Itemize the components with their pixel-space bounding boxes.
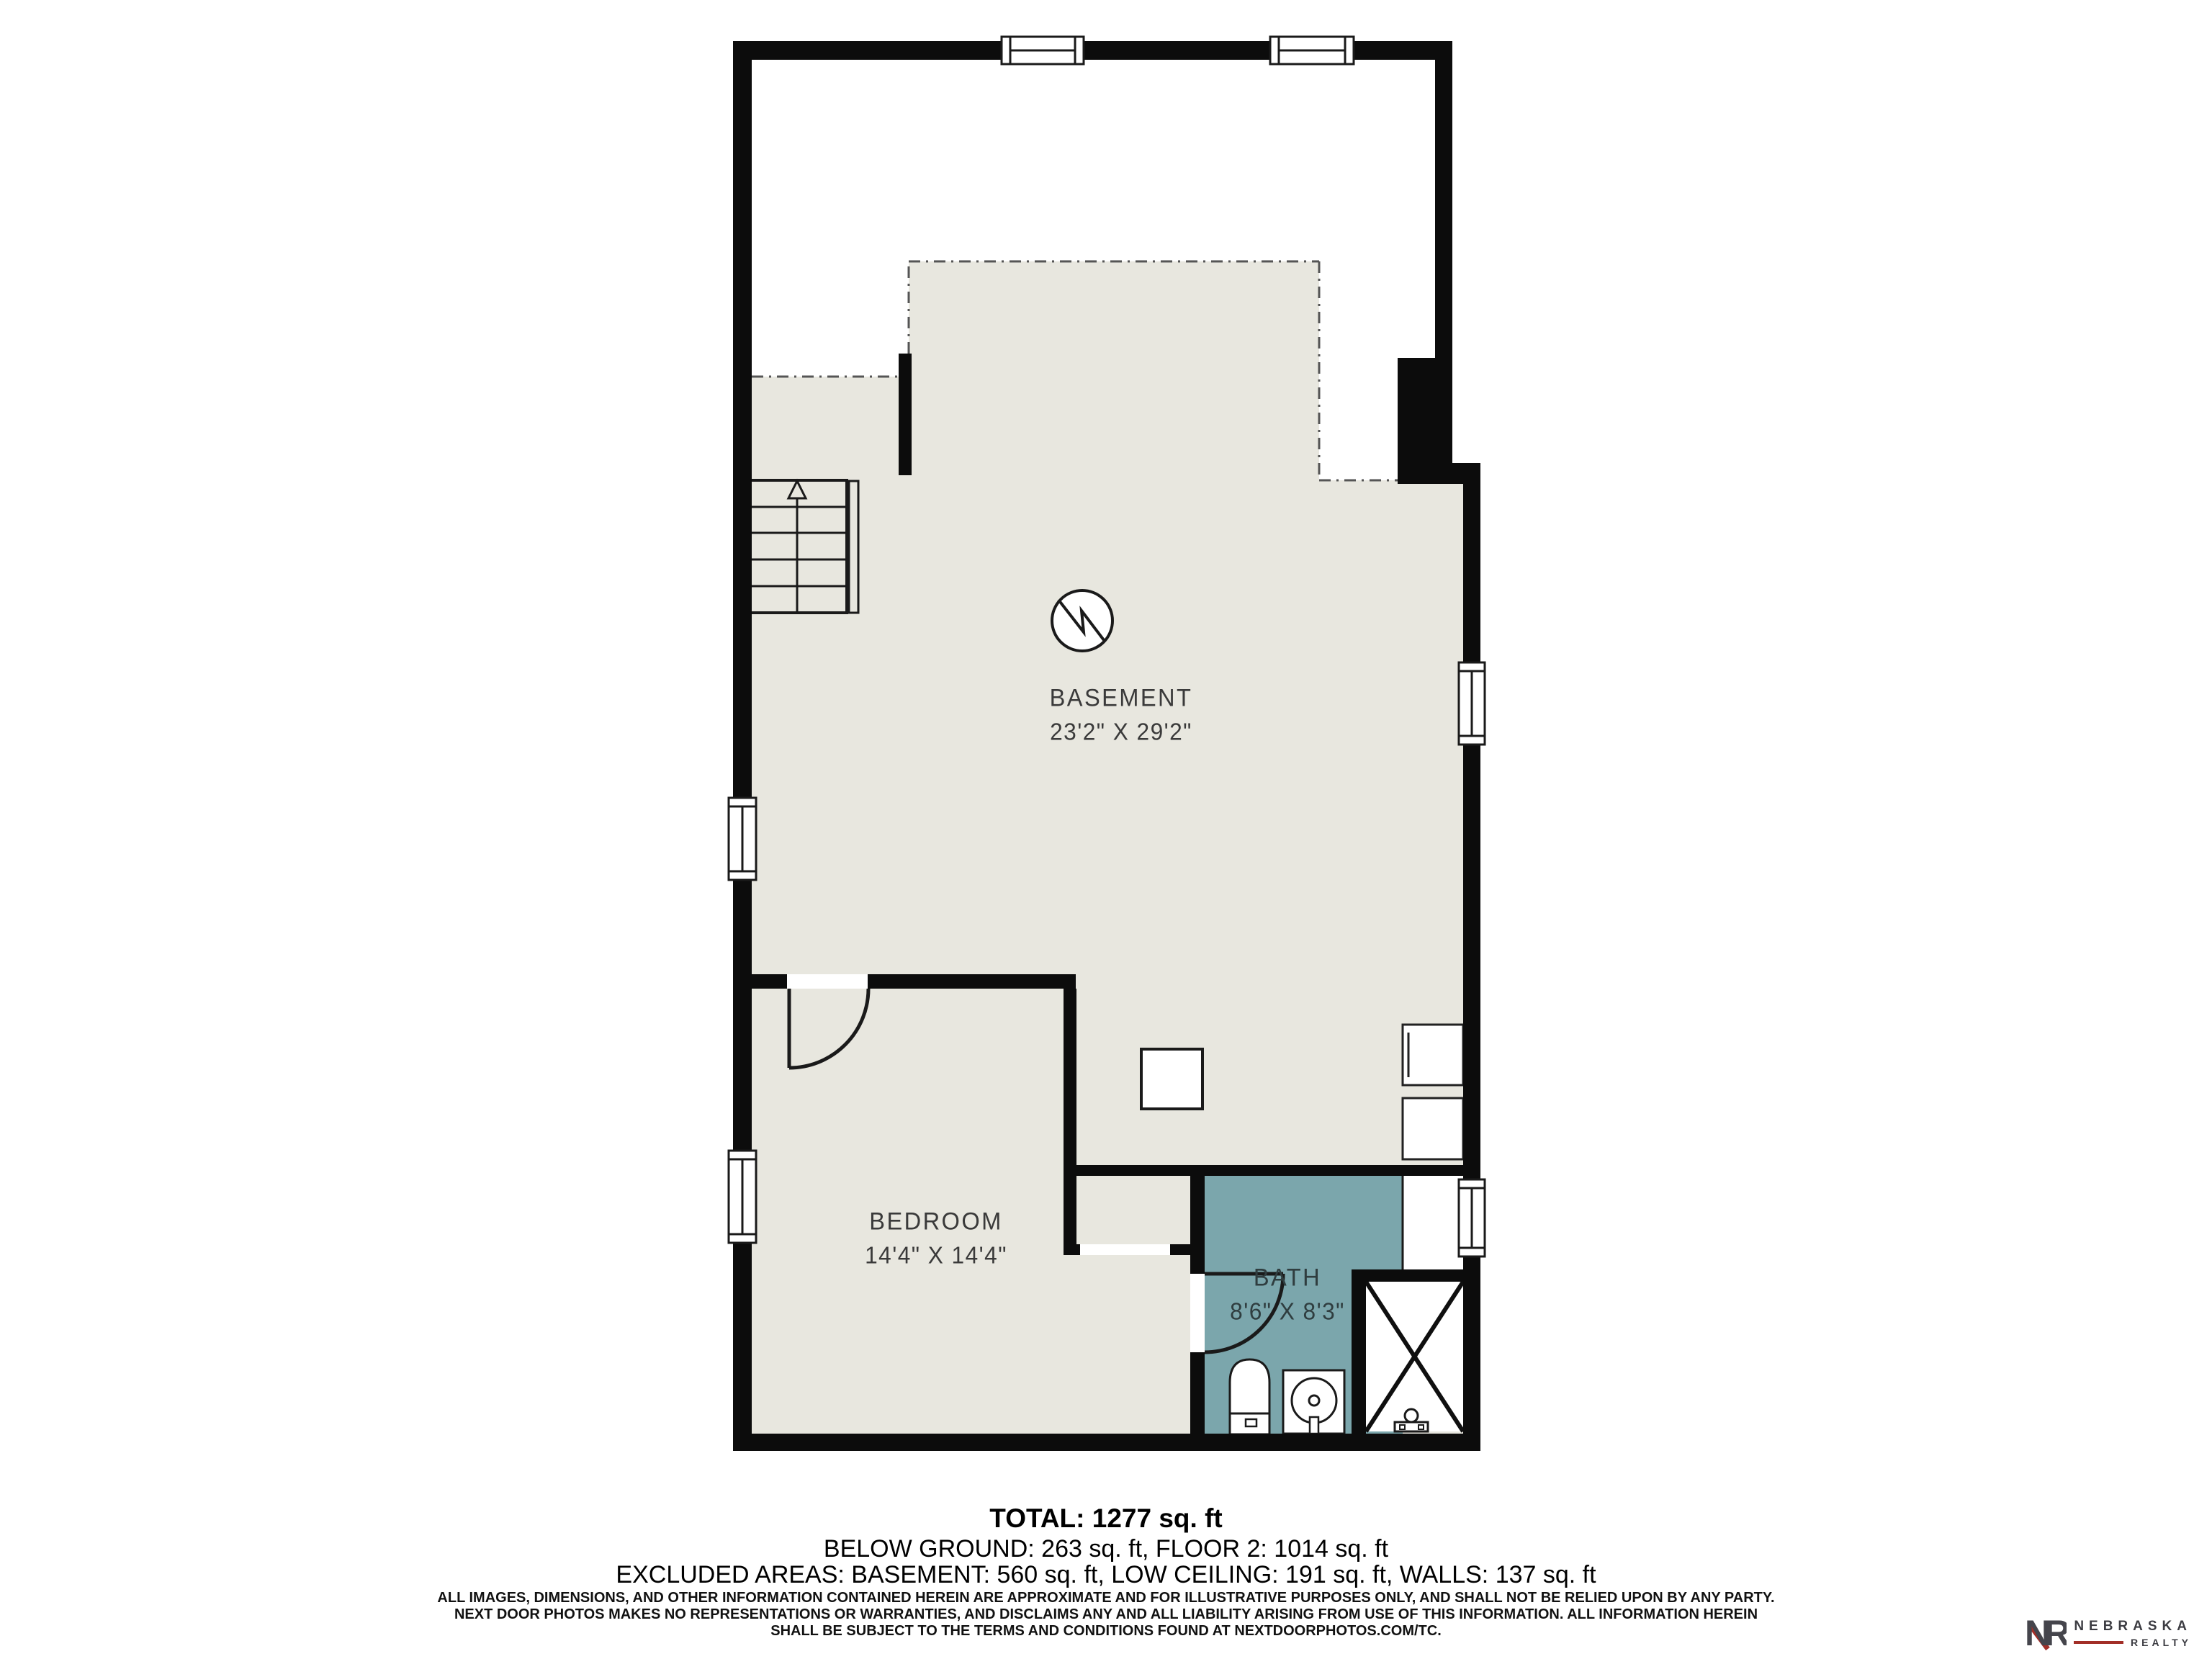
nebraska-realty-monogram-icon: NR: [2025, 1616, 2067, 1650]
shower-room: [1366, 1282, 1463, 1431]
area-breakdown-text: BELOW GROUND: 263 sq. ft, FLOOR 2: 1014 …: [0, 1535, 2212, 1563]
support-post: [1141, 1049, 1202, 1109]
window-top-1: [1002, 37, 1084, 64]
bedroom-room-label: BEDROOM 14'4" X 14'4": [865, 1208, 1007, 1269]
sink-icon: [1283, 1370, 1344, 1434]
toilet-icon: [1230, 1359, 1269, 1434]
stairs: [750, 480, 858, 613]
window-left-2: [729, 1151, 756, 1243]
nebraska-realty-logo: NR NEBRASKA REALTY: [2025, 1616, 2192, 1650]
room-name: BASEMENT: [1050, 685, 1193, 713]
room-name: BEDROOM: [865, 1208, 1007, 1236]
disclaimer-line: NEXT DOOR PHOTOS MAKES NO REPRESENTATION…: [0, 1606, 2212, 1623]
logo-name-text: NEBRASKA: [2074, 1619, 2192, 1635]
svg-text:NR: NR: [2025, 1616, 2067, 1650]
window-top-2: [1270, 37, 1354, 64]
excluded-areas-text: EXCLUDED AREAS: BASEMENT: 560 sq. ft, LO…: [0, 1561, 2212, 1589]
utility-room: [1403, 1176, 1463, 1269]
floorplan-page: BASEMENT 23'2" X 29'2" BEDROOM 14'4" X 1…: [0, 0, 2212, 1659]
disclaimer-line: ALL IMAGES, DIMENSIONS, AND OTHER INFORM…: [0, 1590, 2212, 1606]
room-name: BATH: [1230, 1264, 1345, 1292]
room-dimensions: 14'4" X 14'4": [865, 1242, 1007, 1269]
window-left-1: [729, 798, 756, 880]
room-dimensions: 8'6" X 8'3": [1230, 1298, 1345, 1326]
room-dimensions: 23'2" X 29'2": [1050, 719, 1193, 746]
total-area-text: TOTAL: 1277 sq. ft: [0, 1503, 2212, 1534]
basement-room-label: BASEMENT 23'2" X 29'2": [1050, 685, 1193, 746]
bath-room-label: BATH 8'6" X 8'3": [1230, 1264, 1345, 1326]
north-indicator-icon: [1052, 590, 1112, 651]
window-right-1: [1459, 662, 1485, 745]
logo-red-rule: [2074, 1641, 2123, 1644]
logo-subname-text: REALTY: [2131, 1637, 2192, 1648]
disclaimer-line: SHALL BE SUBJECT TO THE TERMS AND CONDIT…: [0, 1623, 2212, 1640]
window-right-2: [1459, 1179, 1485, 1256]
floorplan-drawing: [0, 0, 2212, 1659]
disclaimer-text: ALL IMAGES, DIMENSIONS, AND OTHER INFORM…: [0, 1590, 2212, 1640]
